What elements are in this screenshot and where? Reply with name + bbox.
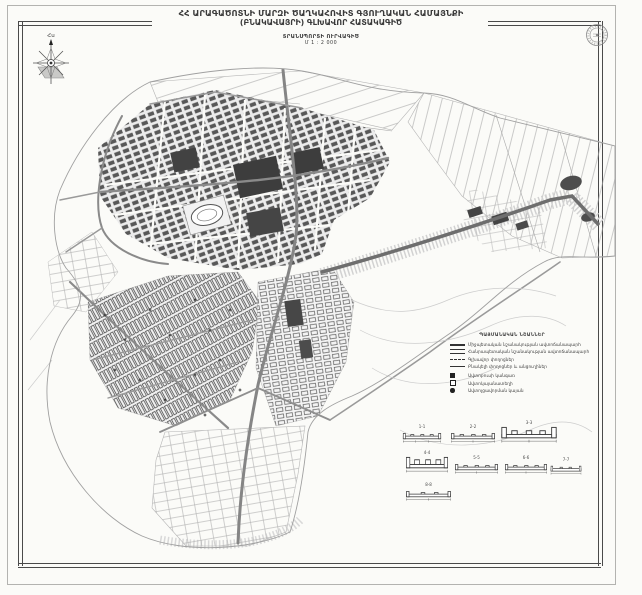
cross-section: 6-6 xyxy=(504,455,548,474)
cross-section: 1-1 xyxy=(402,424,442,443)
legend-item: Ավտոլցավորման կայան xyxy=(450,388,574,393)
cross-section: 8-8 xyxy=(405,482,452,501)
parking-symbol xyxy=(450,380,465,386)
district-south-central xyxy=(256,268,354,426)
cross-section: 7-7 xyxy=(550,457,582,475)
legend-title: ՊԱՅՄԱՆԱԿԱՆ ՆՇԱՆՆԵՐ xyxy=(450,333,574,338)
main-street-symbol xyxy=(450,359,465,360)
plan-sheet: ՀՀ ԱՐԱԳԱԾՈՏՆԻ ՄԱՐԶԻ ԾԱՂԿԱՀՈՎԻՏ ԳՅՈՒՂԱԿԱՆ… xyxy=(0,0,642,595)
parcels-south xyxy=(152,426,305,546)
legend-item: Բնակելի փողոցներ և անցուղիներ xyxy=(450,364,574,369)
legend: ՊԱՅՄԱՆԱԿԱՆ ՆՇԱՆՆԵՐ Միջպետական նշանակությ… xyxy=(450,333,574,395)
road-cross-sections: 1-1 2-2 3-3 xyxy=(397,418,599,516)
cross-section: 5-5 xyxy=(454,455,499,474)
road-interstate-symbol xyxy=(450,344,465,346)
legend-item: Հանրապետական նշանակության ավտոճանապարհ xyxy=(450,349,574,354)
legend-item: Ավտոկայանատեղի xyxy=(450,381,574,386)
legend-item: Միջպետական նշանակության ավտոճանապարհ xyxy=(450,342,574,347)
fuel-station-symbol xyxy=(450,388,465,393)
cross-section: 4-4 xyxy=(405,450,449,473)
cross-section: 2-2 xyxy=(450,424,496,443)
residential-street-symbol xyxy=(450,366,465,367)
cross-section: 3-3 xyxy=(500,420,558,443)
road-republican-symbol xyxy=(450,349,465,354)
legend-item: Ավտոբուսի կանգառ xyxy=(450,373,574,378)
bus-stop-symbol xyxy=(450,373,465,378)
legend-item: Գլխավոր փողոցներ xyxy=(450,357,574,362)
district-southwest xyxy=(88,272,260,426)
